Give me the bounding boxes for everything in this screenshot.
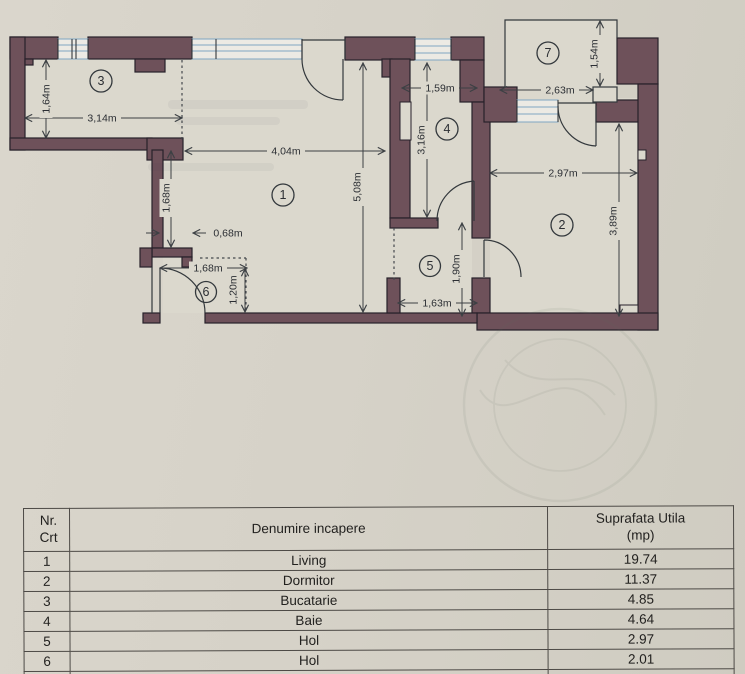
row-number: 4 [24,611,70,631]
dim-label: 1,59m [421,82,459,95]
svg-text:1,90m: 1,90m [451,254,463,283]
room-area: 11.37 [548,569,734,590]
svg-text:1: 1 [280,188,287,202]
window-icon [415,39,451,60]
header-nr-line: Nr. [29,513,68,530]
window-icon [192,39,302,59]
room-name: Hol [70,629,548,651]
svg-text:1,68m: 1,68m [193,263,222,275]
dim-label: 1,68m [160,179,173,217]
svg-text:3,89m: 3,89m [608,206,620,235]
dim-label: 3,89m [607,202,620,240]
table-row: 5 Hol 2.97 [24,629,734,652]
svg-text:5: 5 [427,259,434,273]
svg-text:1,68m: 1,68m [161,183,173,212]
dim-label: 1,20m [227,271,240,309]
svg-text:1,20m: 1,20m [228,275,240,304]
table-row: 3 Bucatarie 4.85 [24,589,734,612]
dim-label: 2,63m [541,84,579,97]
svg-text:5,08m: 5,08m [352,172,364,201]
row-number: 3 [24,591,70,611]
row-number: 6 [24,651,70,671]
svg-text:4,04m: 4,04m [271,146,300,158]
row-number: 1 [24,551,70,571]
room-name: Dormitor [70,569,548,591]
room-area: 4.85 [548,589,734,610]
svg-text:3,14m: 3,14m [87,113,116,125]
room-name: Bucatarie [70,589,548,611]
header-suprafata-utila: Suprafata Utila (mp) [547,506,733,550]
table-row: 6 Hol 2.01 [24,649,734,672]
floor-plan-drawing: 3,14m 4,04m 0,68m 1,68m 1,59m 1,63m 2,63… [0,0,745,508]
svg-text:7: 7 [545,46,552,60]
svg-text:3,16m: 3,16m [416,125,428,154]
dim-label: 1,64m [40,80,53,118]
window-icon [517,100,558,122]
dim-label: 2,97m [544,167,582,180]
dim-label: 1,68m [189,262,227,275]
room-area: 2.01 [548,649,734,670]
dim-label: 1,90m [450,250,463,288]
dim-label: 3,14m [83,112,121,125]
header-crt-line: Crt [29,530,68,547]
table-row: 2 Dormitor 11.37 [24,569,734,592]
svg-text:2: 2 [559,218,566,232]
room-area: 19.74 [548,549,734,570]
svg-text:4: 4 [444,122,451,136]
window-icon [58,39,88,59]
dim-label: 1,54m [588,35,601,73]
svg-text:6: 6 [203,285,210,299]
table-row: 1 Living 19.74 [24,549,734,572]
room-areas-table: Nr. Crt Denumire incapere Suprafata Util… [23,505,721,674]
dim-label: 0,68m [209,227,247,240]
room-area: 2.97 [548,629,734,650]
svg-text:1,54m: 1,54m [589,39,601,68]
dim-label: 5,08m [351,168,364,206]
svg-text:1,59m: 1,59m [425,83,454,95]
table-row: 4 Baie 4.64 [24,609,734,632]
svg-text:2,63m: 2,63m [545,85,574,97]
svg-text:1,63m: 1,63m [422,298,451,310]
row-number: 5 [24,631,70,651]
room-area: 4.64 [548,609,734,630]
header-mp-line: (mp) [549,527,732,545]
scanned-floor-plan-page: 3,14m 4,04m 0,68m 1,68m 1,59m 1,63m 2,63… [0,0,745,674]
svg-text:1,64m: 1,64m [41,84,53,113]
svg-text:0,68m: 0,68m [213,228,242,240]
svg-text:2,97m: 2,97m [548,168,577,180]
room-name: Baie [70,609,548,631]
stamp-watermark [464,309,656,501]
header-suprafata-line: Suprafata Utila [549,510,732,528]
dim-label: 4,04m [267,145,305,158]
row-number: 2 [24,571,70,591]
table-header-row: Nr. Crt Denumire incapere Suprafata Util… [24,506,734,552]
header-nr-crt: Nr. Crt [24,508,70,551]
dim-label: 1,63m [418,297,456,310]
room-name: Hol [70,649,548,671]
room-name: Living [70,549,548,571]
svg-text:3: 3 [98,74,105,88]
dim-label: 3,16m [415,121,428,159]
header-denumire-incapere: Denumire incapere [70,506,548,551]
